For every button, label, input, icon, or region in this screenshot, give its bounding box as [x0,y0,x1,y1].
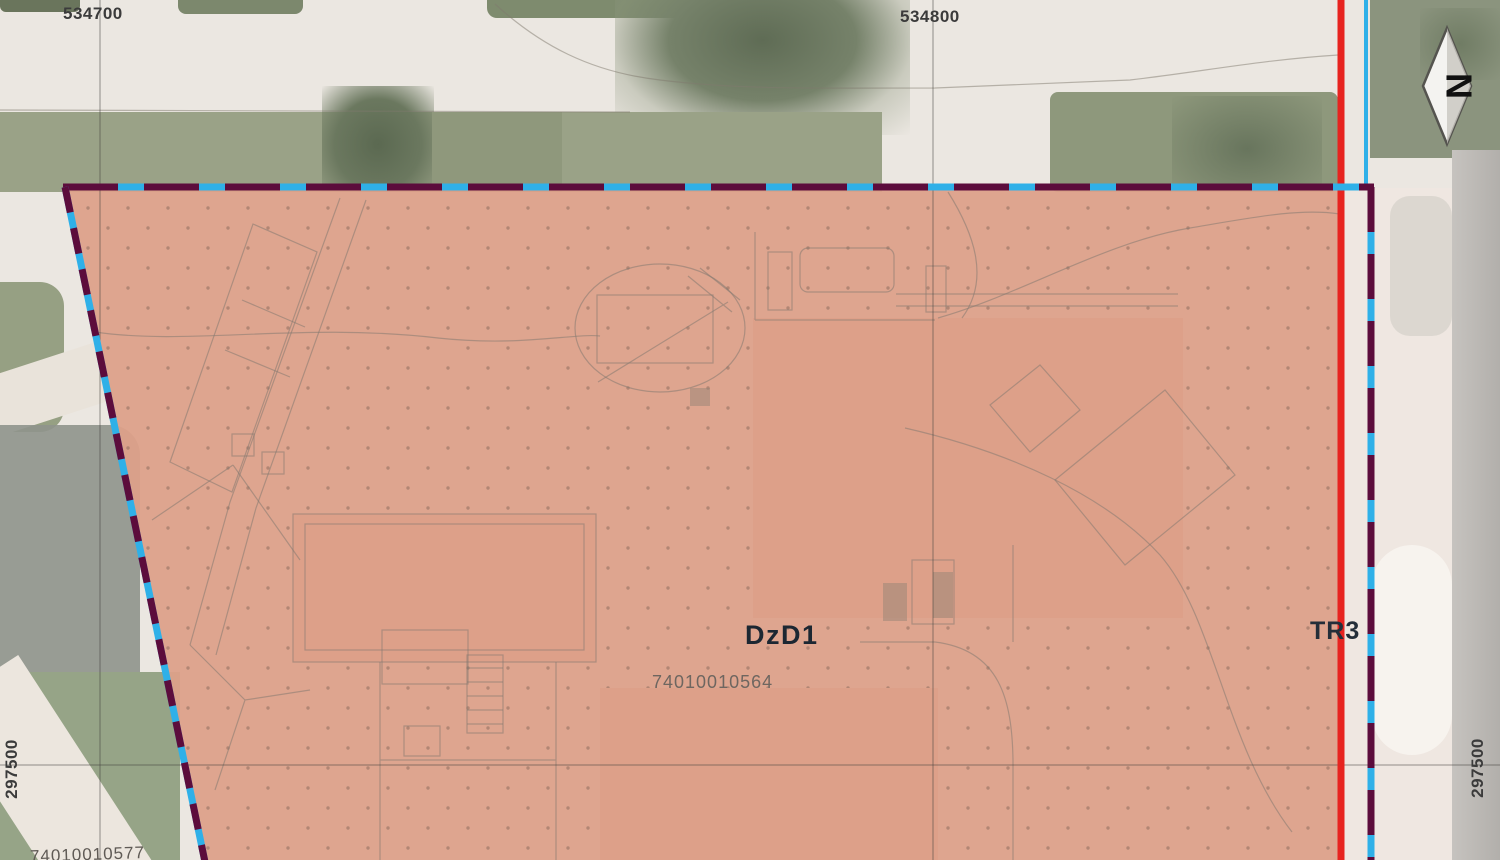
road-curb-lines [0,4,1338,112]
y-coordinate-label-right: 297500 [1468,728,1488,808]
zone-parcel-id: 74010010564 [652,672,773,693]
y-coordinate-label-left: 297500 [2,729,22,809]
zone-label-DzD1[interactable]: DzD1 [745,620,819,651]
map-viewport[interactable]: N 534700 534800 297500 297500 DzD1 74010… [0,0,1500,860]
map-svg: N [0,0,1500,860]
x-coordinate-label-1: 534700 [63,4,123,24]
zone-label-TR3[interactable]: TR3 [1310,617,1360,646]
north-arrow-letter: N [1439,73,1480,99]
bottom-parcel-id: 74010010577 [30,843,146,860]
x-coordinate-label-2: 534800 [900,7,960,27]
north-arrow-icon: N [1423,28,1480,144]
